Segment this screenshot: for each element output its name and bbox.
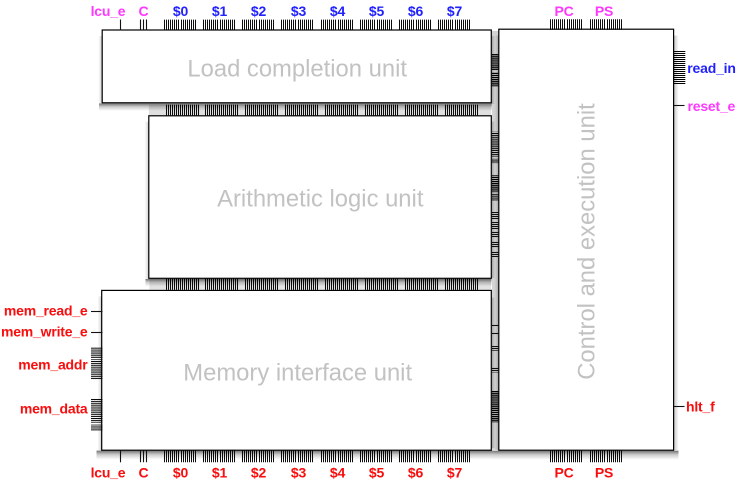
- svg-text:read_instr: read_instr: [687, 60, 736, 76]
- svg-text:$2: $2: [251, 465, 267, 480]
- svg-text:$0: $0: [173, 3, 189, 19]
- svg-text:$0: $0: [173, 465, 189, 480]
- svg-text:mem_data: mem_data: [20, 401, 88, 417]
- svg-text:hlt_f: hlt_f: [686, 399, 715, 415]
- svg-text:PC: PC: [554, 465, 573, 480]
- svg-text:Load completion unit: Load completion unit: [187, 55, 407, 82]
- svg-text:lcu_e: lcu_e: [91, 465, 126, 480]
- svg-text:PS: PS: [595, 465, 613, 480]
- svg-text:$5: $5: [369, 465, 385, 480]
- svg-text:reset_e: reset_e: [688, 98, 736, 114]
- svg-text:$1: $1: [212, 465, 228, 480]
- svg-text:mem_addr: mem_addr: [18, 357, 88, 373]
- svg-text:C: C: [138, 465, 148, 480]
- svg-text:Memory interface unit: Memory interface unit: [183, 359, 412, 386]
- svg-text:PS: PS: [595, 3, 613, 19]
- svg-text:Arithmetic logic unit: Arithmetic logic unit: [217, 186, 424, 213]
- svg-text:PC: PC: [554, 3, 573, 19]
- svg-text:lcu_e: lcu_e: [91, 3, 126, 19]
- svg-text:$4: $4: [330, 465, 346, 480]
- svg-text:$2: $2: [251, 3, 267, 19]
- svg-text:$3: $3: [291, 3, 307, 19]
- svg-text:$7: $7: [447, 465, 463, 480]
- svg-text:Control and execution unit: Control and execution unit: [573, 103, 600, 380]
- svg-text:mem_read_e: mem_read_e: [4, 303, 88, 319]
- svg-text:$3: $3: [291, 465, 307, 480]
- svg-text:C: C: [138, 3, 148, 19]
- svg-text:$5: $5: [369, 3, 385, 19]
- svg-text:mem_write_e: mem_write_e: [1, 324, 88, 340]
- svg-text:$4: $4: [330, 3, 346, 19]
- svg-text:$6: $6: [408, 465, 424, 480]
- svg-text:$7: $7: [447, 3, 463, 19]
- svg-text:$6: $6: [408, 3, 424, 19]
- svg-text:$1: $1: [212, 3, 228, 19]
